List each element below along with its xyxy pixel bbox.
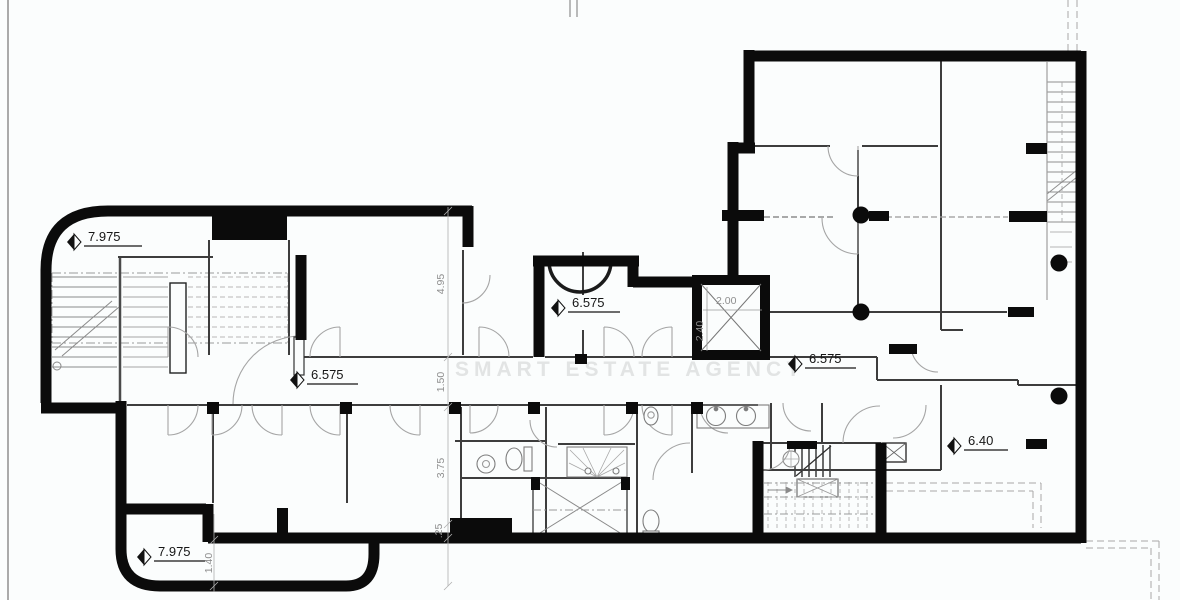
shaft-post — [531, 477, 540, 490]
exterior-walls — [41, 50, 1081, 586]
dim-label: 3.75 — [435, 458, 447, 479]
wall-stub — [1008, 307, 1034, 317]
shower-drain — [585, 468, 591, 474]
top-center-lines — [570, 0, 577, 17]
level-marker-icon — [947, 438, 961, 454]
dim-label: 4.95 — [435, 274, 447, 295]
dim-label: 2.00 — [716, 295, 737, 307]
door-arc — [479, 327, 509, 357]
level-label: 6.575 — [572, 295, 605, 310]
level-label: 6.40 — [968, 433, 993, 448]
left-staircase — [52, 258, 288, 405]
wall-stub — [1009, 211, 1047, 222]
column-dot — [1051, 388, 1068, 405]
beam-dash-right — [886, 483, 1041, 528]
overhang-dashed-lines — [886, 0, 1159, 600]
door-arc — [310, 405, 340, 435]
wall-stub — [1026, 143, 1047, 154]
stair-treads-upper-flight-dashed — [188, 277, 288, 337]
upper-left-stepped-wall — [733, 50, 755, 287]
door-jamb — [691, 402, 703, 414]
wall-stub — [277, 508, 288, 540]
door-arc — [168, 405, 198, 435]
wall-stub — [889, 344, 917, 354]
shower-drain — [613, 468, 619, 474]
door-arc — [462, 275, 490, 303]
watermark-text: SMART ESTATE AGENCY — [455, 358, 805, 381]
level-label: 6.575 — [311, 367, 344, 382]
roof-dash-top-right — [1068, 0, 1077, 51]
stairwell-door-arc — [233, 336, 301, 404]
door-arc — [642, 327, 672, 357]
floor-plan-canvas: SMART ESTATE AGENCY — [0, 0, 1180, 600]
door-jamb — [207, 402, 219, 414]
door-leaf — [294, 337, 304, 375]
door-arc — [530, 420, 557, 447]
door-arc — [252, 405, 282, 435]
door-arc — [843, 406, 880, 443]
stair-treads-dashed — [768, 482, 876, 531]
wall-stub — [787, 441, 817, 449]
stair-direction-arrow — [768, 487, 792, 493]
level-marker-icon — [137, 549, 151, 565]
door-arc — [822, 218, 858, 254]
dim-label: 1.50 — [435, 372, 447, 393]
level-marker-icon — [551, 300, 565, 316]
stair-post-circle — [53, 362, 61, 370]
stair-treads-left-flight — [52, 277, 117, 367]
door-arc — [828, 146, 858, 176]
bathroom-fixtures — [477, 405, 769, 538]
column-dot — [853, 304, 870, 321]
stair-treads-mid-flight — [123, 277, 168, 367]
door-arc — [310, 327, 340, 357]
wc-sink-drain — [648, 412, 654, 418]
wall-stub — [722, 210, 764, 221]
dim-label: .25 — [433, 524, 445, 539]
level-marker-icon — [67, 234, 81, 250]
stair-diagonal — [796, 446, 831, 476]
level-label: 7.975 — [158, 544, 191, 559]
wall-stub — [869, 211, 889, 221]
elevator-car-x — [535, 480, 625, 536]
dim-label: 2.40 — [694, 321, 706, 342]
door-arc — [783, 403, 811, 431]
toilet-tank — [524, 447, 532, 471]
wall-stubs — [207, 143, 1047, 540]
door-jamb — [340, 402, 352, 414]
structural-columns — [853, 207, 1068, 405]
level-label: 7.975 — [88, 229, 121, 244]
door-jamb — [528, 402, 540, 414]
door-arc — [653, 443, 690, 480]
door-arc — [390, 405, 420, 435]
terrace-dash-bottom-right — [1086, 541, 1159, 600]
stair-stringer — [170, 283, 186, 373]
sink-drain — [483, 461, 490, 468]
door-arc — [763, 443, 790, 470]
column-dot — [1051, 255, 1068, 272]
door-arc — [893, 405, 926, 438]
door-arc — [470, 405, 498, 433]
door-jamb — [575, 354, 587, 364]
faucet-dot — [744, 407, 748, 411]
faucet-dot — [714, 407, 718, 411]
door-arc — [604, 327, 634, 357]
shaft-post — [621, 477, 630, 490]
bottom-staircase — [764, 445, 879, 531]
stair-break-line — [55, 301, 119, 356]
floor-plan-page: SMART ESTATE AGENCY — [0, 0, 1180, 600]
wing-room-wall — [121, 504, 208, 542]
shear-wall-block — [212, 211, 287, 240]
toilet-icon — [506, 448, 522, 470]
column-dot — [853, 207, 870, 224]
toilet-icon — [643, 510, 659, 532]
wall-thickening — [450, 518, 512, 540]
wall-stub — [1026, 439, 1047, 449]
dim-label: 1.40 — [203, 553, 215, 574]
door-jamb — [626, 402, 638, 414]
level-label: 6.575 — [809, 351, 842, 366]
